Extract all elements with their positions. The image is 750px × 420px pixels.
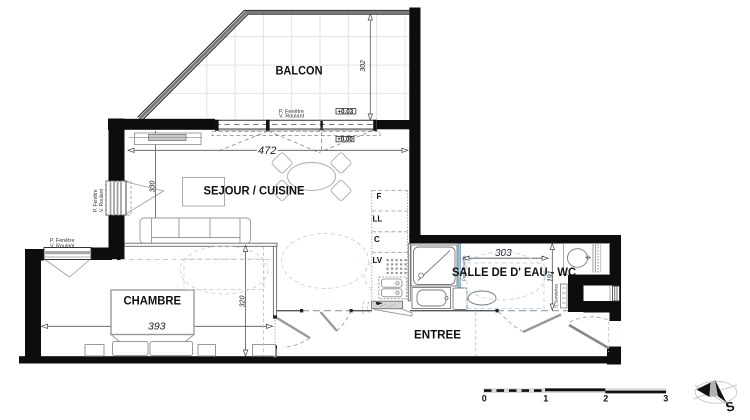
svg-text:320: 320 xyxy=(239,296,246,308)
svg-text:SEJOUR / CUISINE: SEJOUR / CUISINE xyxy=(204,184,305,198)
svg-text:LV: LV xyxy=(373,256,383,265)
svg-text:393: 393 xyxy=(148,321,166,333)
svg-text:302: 302 xyxy=(360,60,367,72)
svg-text:BALCON: BALCON xyxy=(276,64,323,78)
svg-text:ENTREE: ENTREE xyxy=(414,328,461,342)
svg-text:V. Roulant: V. Roulant xyxy=(99,189,105,212)
svg-text:V. Roulant: V. Roulant xyxy=(279,114,305,120)
svg-text:2: 2 xyxy=(603,394,608,404)
svg-text:303: 303 xyxy=(495,248,512,259)
svg-text:+0.03: +0.03 xyxy=(338,108,354,115)
svg-text:SALLE DE D' EAU - WC: SALLE DE D' EAU - WC xyxy=(452,267,576,279)
svg-text:1: 1 xyxy=(543,394,548,404)
svg-text:F: F xyxy=(377,192,382,201)
svg-text:3: 3 xyxy=(663,394,668,404)
svg-text:191: 191 xyxy=(548,270,555,282)
svg-text:330: 330 xyxy=(149,181,156,193)
svg-text:+0.00: +0.00 xyxy=(337,136,353,143)
svg-text:0: 0 xyxy=(482,394,487,404)
svg-text:C: C xyxy=(374,235,380,244)
svg-text:LL: LL xyxy=(373,215,383,224)
svg-text:V. Roulant: V. Roulant xyxy=(50,244,75,250)
svg-text:CHAMBRE: CHAMBRE xyxy=(124,294,182,308)
svg-text:472: 472 xyxy=(258,145,276,157)
